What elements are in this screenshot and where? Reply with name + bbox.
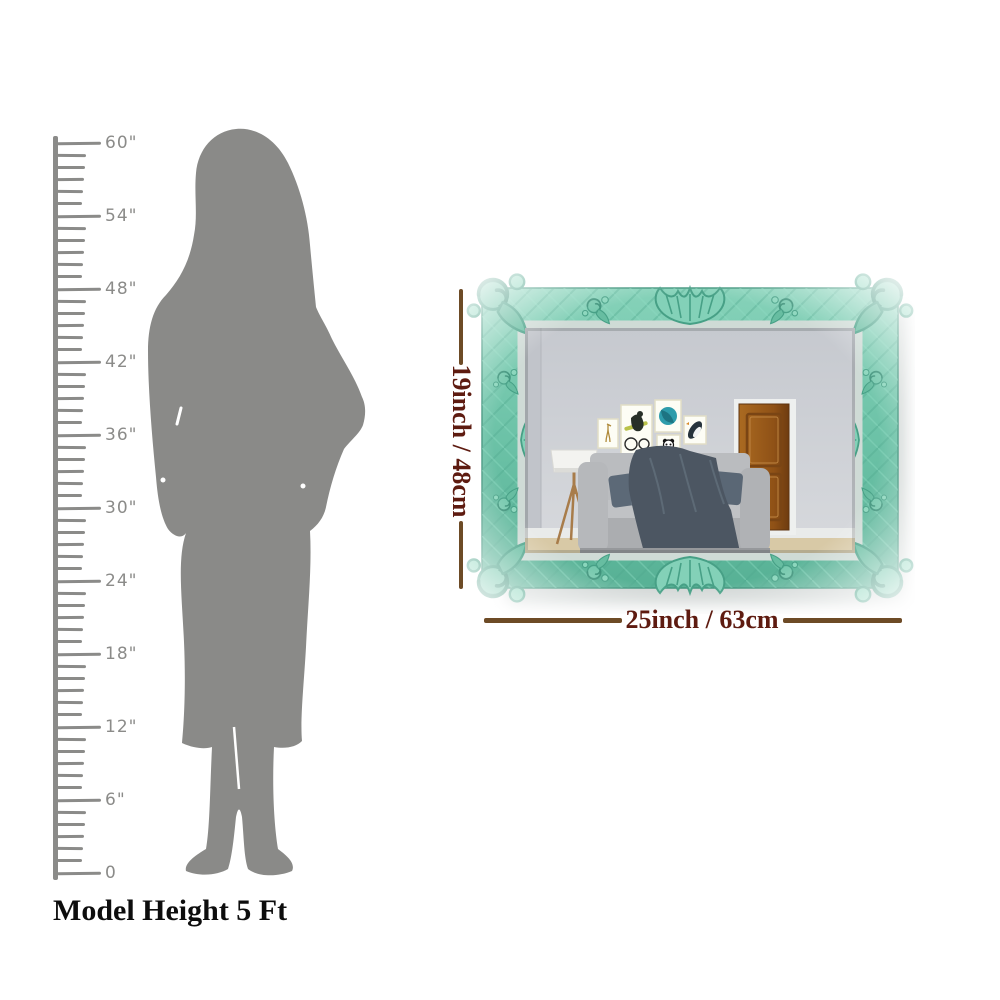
ruler-tick: [57, 336, 83, 339]
ruler-tick: [57, 153, 86, 156]
ruler-tick: [57, 324, 84, 327]
ruler-tick: [57, 251, 84, 254]
ruler-tick: [57, 871, 101, 875]
ruler-label: 24": [105, 571, 137, 591]
ruler-tick: [57, 664, 86, 667]
ruler-tick: [57, 433, 101, 437]
ruler-tick: [57, 531, 85, 534]
ruler-tick: [57, 141, 101, 145]
ruler-tick: [57, 640, 82, 643]
height-dimension-label: 19inch / 48cm: [446, 364, 476, 517]
ruler-tick: [57, 591, 86, 594]
model-height-caption: Model Height 5 Ft: [53, 894, 287, 928]
ruler-tick: [57, 750, 85, 753]
ruler-tick: [57, 567, 82, 570]
height-dimension-line-top: [459, 289, 463, 365]
ruler-tick: [57, 823, 85, 826]
ruler-tick: [57, 774, 83, 777]
ruler-tick: [57, 360, 101, 364]
ruler-tick: [57, 190, 83, 193]
ruler-tick: [57, 397, 84, 400]
ruler-label: 12": [105, 717, 137, 737]
ruler-tick: [57, 178, 84, 181]
ruler-tick: [57, 725, 101, 729]
ruler-tick: [57, 677, 85, 680]
ruler-tick: [57, 737, 86, 740]
ruler-tick: [57, 555, 83, 558]
ruler-tick: [57, 226, 86, 229]
ruler-tick: [57, 713, 82, 716]
size-guide-image: 60"54"48"42"36"30"24"18"12"6"0 Model Hei…: [0, 0, 1000, 1000]
ruler-tick: [57, 458, 85, 461]
ruler-tick: [57, 579, 101, 583]
ruler-tick: [57, 202, 82, 205]
ruler-tick: [57, 348, 82, 351]
ruler-label: 42": [105, 352, 137, 372]
width-dimension-label: 25inch / 63cm: [625, 605, 778, 635]
ruler-tick: [57, 810, 86, 813]
ruler-tick: [57, 470, 84, 473]
ruler-tick: [57, 616, 84, 619]
ruler-label: 18": [105, 644, 137, 664]
ruler-tick: [57, 762, 84, 765]
ruler-tick: [57, 445, 86, 448]
ruler-tick: [57, 372, 86, 375]
ruler-label: 0: [105, 863, 117, 883]
ruler-tick: [57, 543, 84, 546]
ruler-tick: [57, 494, 82, 497]
ruler-tick: [57, 409, 83, 412]
ruler-tick: [57, 604, 85, 607]
ruler-label: 30": [105, 498, 137, 518]
width-dimension-line-left: [484, 618, 622, 623]
silhouette-dot-right: [301, 484, 306, 489]
product-image-mirror: [460, 272, 915, 614]
ruler-tick: [57, 299, 86, 302]
ruler-tick: [57, 275, 82, 278]
mirror-reflection: [525, 328, 855, 553]
ruler-tick: [57, 859, 82, 862]
ruler-tick: [57, 628, 83, 631]
ruler-tick: [57, 312, 85, 315]
model-silhouette: [140, 127, 370, 879]
ruler-tick: [57, 263, 83, 266]
ruler-tick: [57, 166, 85, 169]
ruler-tick: [57, 421, 82, 424]
art-penguin: [684, 416, 706, 444]
ruler-tick: [57, 689, 84, 692]
ruler-label: 60": [105, 133, 137, 153]
ruler-tick: [57, 835, 84, 838]
art-teal-leaf: [655, 400, 681, 432]
ruler-tick: [57, 786, 82, 789]
ruler-tick: [57, 798, 101, 802]
silhouette-dot-left: [161, 478, 166, 483]
ruler-label: 36": [105, 425, 137, 445]
ruler-tick: [57, 506, 101, 510]
ruler-tick: [57, 214, 101, 218]
ruler-tick: [57, 701, 83, 704]
height-dimension-line-bottom: [459, 521, 463, 589]
ruler-tick: [57, 847, 83, 850]
ruler-tick: [57, 652, 101, 656]
sofa: [578, 446, 770, 553]
width-dimension-line-right: [783, 618, 902, 623]
ruler-tick: [57, 518, 86, 521]
ruler-tick: [57, 239, 85, 242]
art-giraffe: [598, 419, 618, 448]
ruler-tick: [57, 287, 101, 291]
ruler-label: 48": [105, 279, 137, 299]
ruler-tick: [57, 482, 83, 485]
ruler-tick: [57, 385, 85, 388]
ruler-label: 54": [105, 206, 137, 226]
silhouette-body: [148, 129, 365, 875]
ruler-label: 6": [105, 790, 126, 810]
